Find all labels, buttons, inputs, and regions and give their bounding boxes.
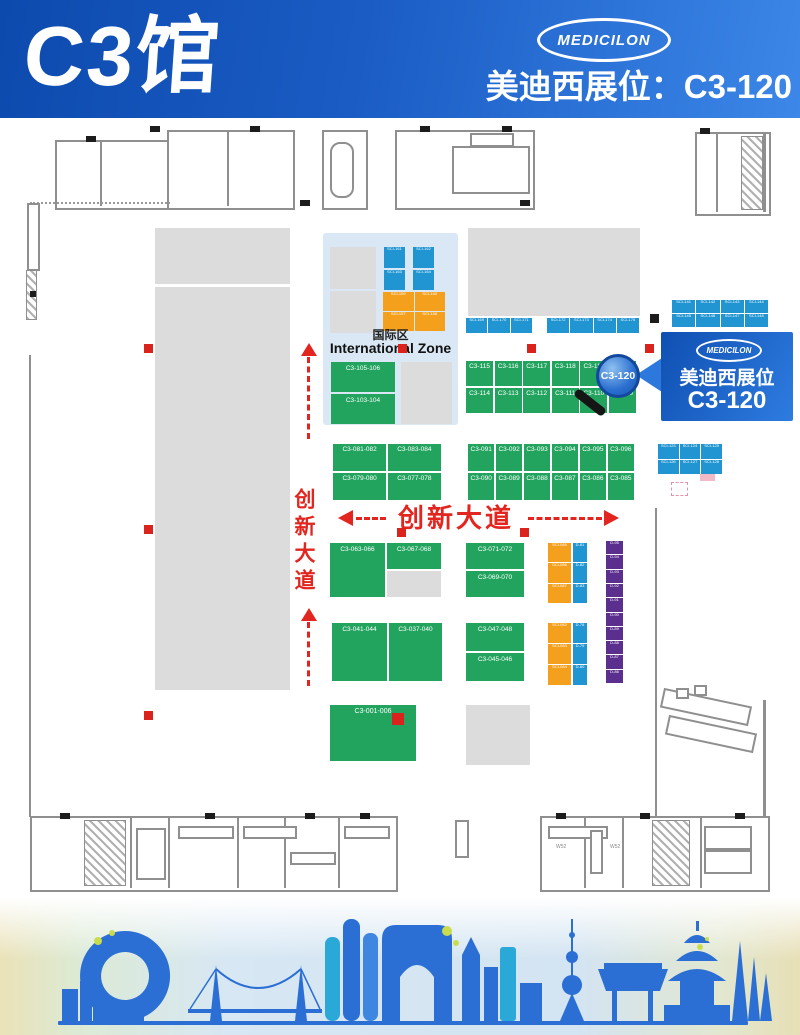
booth-cell: SCI-160 bbox=[415, 292, 446, 311]
booth-block: C3-105-106 bbox=[331, 362, 395, 392]
divider bbox=[330, 289, 376, 291]
wall bbox=[29, 355, 31, 817]
room-outline bbox=[455, 820, 469, 858]
booth-cell: SCI-172 bbox=[547, 318, 569, 333]
skyline-band bbox=[0, 897, 800, 1035]
booth-cell: SCI-125 bbox=[701, 444, 722, 459]
wall bbox=[168, 816, 170, 888]
booth-strip-purple: D-95D-94D-93D-92D-91D-90D-89D-88D-87D-86 bbox=[606, 541, 623, 683]
room-label: W52 bbox=[610, 844, 620, 850]
booth-cell: SCI-162 bbox=[413, 247, 434, 268]
booth-cell: SCI-170 bbox=[488, 318, 509, 333]
booth-col-orange-upper: SCI-085SCI-086SCI-087 bbox=[548, 543, 571, 603]
booth-cell: C3-113 bbox=[495, 388, 522, 413]
red-marker bbox=[520, 528, 529, 537]
booth-cell: D-86 bbox=[606, 670, 623, 683]
booth-cell: D-88 bbox=[606, 641, 623, 654]
booth-cell: C3-077-078 bbox=[388, 473, 441, 500]
door-marker bbox=[420, 126, 430, 132]
booth-cell: SCI-126 bbox=[658, 460, 679, 475]
wall bbox=[237, 816, 239, 888]
red-marker bbox=[527, 344, 536, 353]
booth-cell: SCI-087 bbox=[548, 584, 571, 603]
door-marker bbox=[556, 813, 566, 819]
divider bbox=[155, 284, 290, 287]
booth-cell: SCI-161 bbox=[384, 247, 405, 268]
avenue-dash bbox=[307, 357, 310, 439]
column-marker bbox=[30, 291, 36, 297]
booth-cell: SCI-085 bbox=[548, 543, 571, 562]
door-marker bbox=[250, 126, 260, 132]
booth-cell: SCI-175 bbox=[617, 318, 639, 333]
stairs-hatch bbox=[652, 820, 690, 886]
booth-cell: SCI-147 bbox=[721, 314, 744, 327]
booth-cell: D-87 bbox=[606, 655, 623, 668]
booth-block: C3-103-104 bbox=[331, 394, 395, 424]
booth-cell: D-92 bbox=[606, 584, 623, 597]
pink-block bbox=[700, 474, 715, 481]
door-marker bbox=[205, 813, 215, 819]
room-outline bbox=[55, 140, 171, 210]
wall bbox=[716, 132, 718, 212]
booth-cell: SCI-164 bbox=[413, 270, 434, 291]
room-outline bbox=[590, 830, 603, 874]
booth-strip-left: SCI-169SCI-170SCI-171 bbox=[466, 318, 532, 333]
wall bbox=[763, 132, 766, 212]
room-outline bbox=[243, 826, 297, 839]
booth-cell: C3-083-084 bbox=[388, 444, 441, 471]
door-marker bbox=[520, 200, 530, 206]
booth-cell: C3-086 bbox=[580, 473, 606, 500]
avenue-label-vertical: 创新大道 bbox=[288, 488, 318, 603]
door-marker bbox=[502, 126, 512, 132]
booth-cell: SCI-148 bbox=[745, 314, 768, 327]
booth-cell: D-81 bbox=[573, 543, 587, 562]
booth-cell: C3-092 bbox=[496, 444, 522, 471]
booth-cell: SCI-141 bbox=[672, 300, 695, 313]
magnifier-label: C3-120 bbox=[601, 370, 635, 382]
wall bbox=[30, 202, 170, 204]
booth-cell: SCI-082 bbox=[548, 623, 571, 643]
booth-col-blue-upper: D-81D-82D-83 bbox=[573, 543, 587, 603]
block-gray bbox=[401, 362, 452, 424]
booth-cell: C3-087 bbox=[552, 473, 578, 500]
medicilon-logo-small: MEDICILON bbox=[696, 339, 762, 362]
door-marker bbox=[305, 813, 315, 819]
booth-col-blue-lower: D-78D-79D-80 bbox=[573, 623, 587, 685]
booth-cell: C3-117 bbox=[523, 361, 550, 386]
callout-line1: 美迪西展位 bbox=[661, 363, 793, 390]
room-outline bbox=[704, 826, 752, 850]
header-booth-subtitle: 美迪西展位：C3-120 bbox=[370, 60, 792, 108]
medicilon-callout: MEDICILON 美迪西展位 C3-120 bbox=[661, 332, 793, 421]
room-outline bbox=[694, 685, 707, 696]
booth-cell: SCI-143 bbox=[721, 300, 744, 313]
callout-line2: C3-120 bbox=[661, 387, 793, 415]
booth-grid-mid-right-top: C3-091C3-092C3-093C3-094C3-095C3-096 bbox=[468, 444, 634, 471]
stairs-hatch bbox=[741, 136, 763, 210]
block-gray bbox=[466, 705, 530, 765]
city-skyline-graphic bbox=[0, 897, 800, 1035]
booth-block: C3-071-072 bbox=[466, 543, 524, 569]
booth-cell: C3-088 bbox=[524, 473, 550, 500]
booth-cell: SCI-145 bbox=[672, 314, 695, 327]
booth-cell: SCI-174 bbox=[594, 318, 616, 333]
booth-cell: C3-091 bbox=[468, 444, 494, 471]
red-marker bbox=[144, 525, 153, 534]
booth-block: C3-067-068 bbox=[387, 543, 441, 569]
wall bbox=[227, 130, 229, 206]
booth-cell: C3-093 bbox=[524, 444, 550, 471]
booth-cell: C3-118 bbox=[552, 361, 579, 386]
intl-blue-booths: SCI-161SCI-162SCI-163SCI-164 bbox=[384, 247, 434, 290]
wall bbox=[100, 140, 102, 206]
booth-cell: D-80 bbox=[573, 665, 587, 685]
medicilon-logo: MEDICILON bbox=[537, 18, 671, 62]
wall bbox=[655, 508, 657, 818]
room-outline bbox=[167, 130, 295, 210]
booth-cell: SCI-171 bbox=[511, 318, 532, 333]
hall-title: C3馆 bbox=[20, 0, 225, 112]
avenue-arrow-up bbox=[301, 608, 317, 621]
booth-cell: C3-081-082 bbox=[333, 444, 386, 471]
booth-block: C3-069-070 bbox=[466, 571, 524, 597]
medicilon-logo-small-text: MEDICILON bbox=[707, 346, 752, 355]
booth-block: C3-037-040 bbox=[389, 623, 442, 681]
door-marker bbox=[60, 813, 70, 819]
booth-cell: C3-089 bbox=[496, 473, 522, 500]
block-gray bbox=[387, 571, 441, 597]
booth-cell: D-91 bbox=[606, 598, 623, 611]
room-label: W52 bbox=[556, 844, 566, 850]
booth-cell: D-94 bbox=[606, 555, 623, 568]
avenue-arrow-left bbox=[338, 510, 353, 526]
red-marker bbox=[144, 344, 153, 353]
door-marker bbox=[360, 813, 370, 819]
booth-cell: SCI-142 bbox=[696, 300, 719, 313]
avenue-dash bbox=[356, 517, 386, 520]
wall bbox=[700, 816, 702, 888]
room-outline bbox=[290, 852, 336, 865]
booth-col-orange-lower: SCI-082SCI-083SCI-084 bbox=[548, 623, 571, 685]
magnifier-lens: C3-120 bbox=[596, 354, 640, 398]
room-outline bbox=[178, 826, 234, 839]
international-zone-title-en: International Zone bbox=[323, 340, 458, 356]
booth-cell: C3-095 bbox=[580, 444, 606, 471]
booth-cell: SCI-173 bbox=[570, 318, 592, 333]
booth-cell: C3-090 bbox=[468, 473, 494, 500]
booth-strip-right: SCI-172SCI-173SCI-174SCI-175 bbox=[547, 318, 639, 333]
avenue-arrow-right bbox=[604, 510, 619, 526]
booth-cell: SCI-086 bbox=[548, 563, 571, 582]
door-marker bbox=[700, 128, 710, 134]
room-outline bbox=[470, 133, 514, 147]
booth-cell: D-79 bbox=[573, 644, 587, 664]
red-marker bbox=[397, 528, 406, 537]
booth-cell: D-89 bbox=[606, 627, 623, 640]
red-marker bbox=[144, 711, 153, 720]
booth-cell: SCI-084 bbox=[548, 665, 571, 685]
booth-cell: C3-085 bbox=[608, 473, 634, 500]
avenue-dash bbox=[307, 622, 310, 686]
booth-cell: C3-112 bbox=[523, 388, 550, 413]
booth-cell: SCI-169 bbox=[466, 318, 487, 333]
booth-block: C3-063-066 bbox=[330, 543, 385, 597]
header-banner: C3馆 MEDICILON 美迪西展位：C3-120 bbox=[0, 0, 800, 118]
red-marker bbox=[398, 344, 407, 353]
booth-cell: C3-096 bbox=[608, 444, 634, 471]
booth-cell: SCI-128 bbox=[701, 460, 722, 475]
booth-grid-mid-right-bottom: C3-090C3-089C3-088C3-087C3-086C3-085 bbox=[468, 473, 634, 500]
booth-cell: C3-115 bbox=[466, 361, 493, 386]
booth-cell: SCI-159 bbox=[383, 292, 414, 311]
booth-cell: D-95 bbox=[606, 541, 623, 554]
door-marker bbox=[640, 813, 650, 819]
booth-cell: SCI-123 bbox=[658, 444, 679, 459]
booth-cell: SCI-083 bbox=[548, 644, 571, 664]
booth-cell: C3-116 bbox=[495, 361, 522, 386]
wall bbox=[27, 203, 40, 271]
avenue-arrow-up bbox=[301, 343, 317, 356]
booth-cell: SCI-127 bbox=[680, 460, 701, 475]
red-marker bbox=[645, 344, 654, 353]
booth-grid-right-top: SCI-141SCI-142SCI-143SCI-144SCI-145SCI-1… bbox=[672, 300, 768, 327]
room-outline bbox=[452, 146, 530, 194]
booth-grid-mid-left: C3-081-082C3-083-084C3-079-080C3-077-078 bbox=[333, 444, 441, 500]
booth-cell: D-82 bbox=[573, 563, 587, 582]
booth-cell: SCI-144 bbox=[745, 300, 768, 313]
booth-cell: C3-094 bbox=[552, 444, 578, 471]
block-gray bbox=[468, 228, 640, 316]
pink-sketch bbox=[671, 482, 688, 496]
booth-cell: D-78 bbox=[573, 623, 587, 643]
wall bbox=[338, 816, 340, 888]
booth-block: C3-041-044 bbox=[332, 623, 387, 681]
door-marker bbox=[150, 126, 160, 132]
booth-cell: D-93 bbox=[606, 570, 623, 583]
room-outline bbox=[704, 850, 752, 874]
red-marker bbox=[392, 713, 404, 725]
column-marker bbox=[650, 314, 659, 323]
room-outline bbox=[344, 826, 390, 839]
door-marker bbox=[735, 813, 745, 819]
booth-cell: C3-079-080 bbox=[333, 473, 386, 500]
avenue-label: 创新大道 bbox=[398, 498, 514, 535]
avenue-dash bbox=[528, 517, 602, 520]
medicilon-logo-text: MEDICILON bbox=[557, 32, 650, 49]
room-outline bbox=[676, 688, 689, 699]
floorplan-poster: C3馆 MEDICILON 美迪西展位：C3-120 SCI-169SCI-17… bbox=[0, 0, 800, 1035]
room-outline bbox=[330, 142, 354, 198]
booth-cell: SCI-163 bbox=[384, 270, 405, 291]
booth-cell: D-90 bbox=[606, 613, 623, 626]
booth-block: C3-047-048 bbox=[466, 623, 524, 651]
booth-block: C3-045-046 bbox=[466, 653, 524, 681]
hall-core-block bbox=[155, 228, 290, 690]
wall bbox=[130, 816, 132, 888]
door-marker bbox=[300, 200, 310, 206]
booth-cell: D-83 bbox=[573, 584, 587, 603]
booth-grid-right-mid: SCI-123SCI-124SCI-125SCI-126SCI-127SCI-1… bbox=[658, 444, 722, 474]
door-marker bbox=[86, 136, 96, 142]
stairs-hatch bbox=[84, 820, 126, 886]
wall bbox=[622, 816, 624, 888]
room-outline bbox=[136, 828, 166, 880]
booth-cell: SCI-124 bbox=[680, 444, 701, 459]
booth-cell: C3-114 bbox=[466, 388, 493, 413]
booth-cell: SCI-146 bbox=[696, 314, 719, 327]
